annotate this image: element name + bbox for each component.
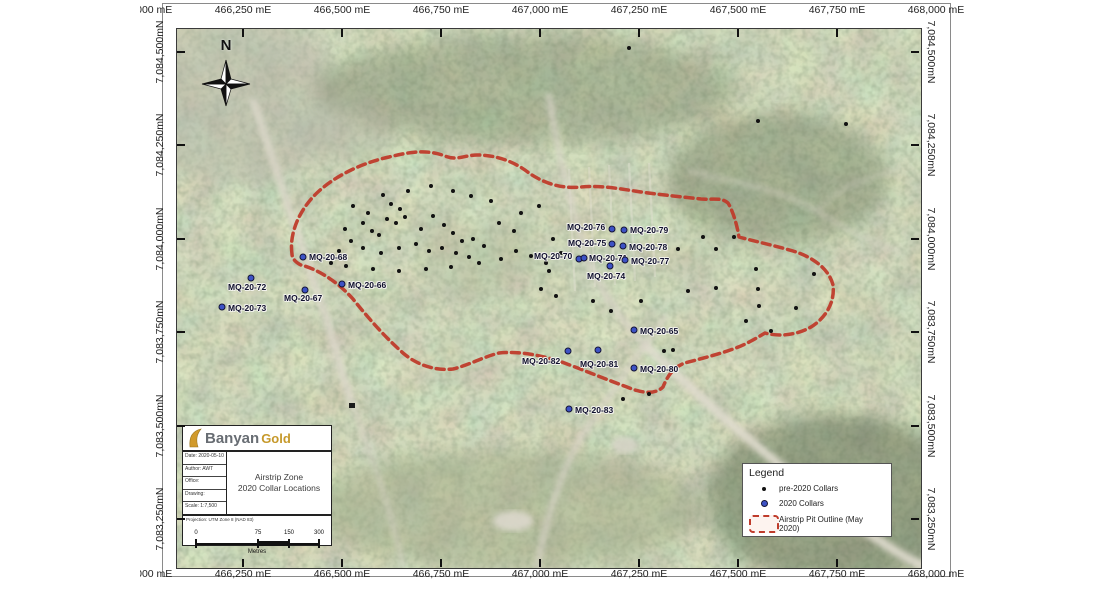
collar-label: MQ-20-73 (228, 303, 266, 313)
pre2020-collar-dot (385, 217, 389, 221)
grid-tick-right (911, 331, 919, 333)
pre2020-collar-dot (744, 319, 748, 323)
grid-tick-bottom (737, 559, 739, 567)
collar-label: MQ-20-80 (640, 364, 678, 374)
pre2020-collar-dot (427, 249, 431, 253)
scale-tick: 0 (194, 530, 197, 536)
pre2020-collar-dot (431, 214, 435, 218)
northing-label-left: 7,083,250mN (154, 487, 166, 550)
pre2020-collar-dot (394, 221, 398, 225)
pre2020-collar-dot (671, 348, 675, 352)
map-title-line2: 2020 Collar Locations (238, 483, 320, 494)
collar-2020-dot (565, 348, 572, 355)
pre2020-collar-dot (754, 267, 758, 271)
collar-2020-dot (609, 226, 616, 233)
collar-2020-dot (631, 365, 638, 372)
pre2020-collar-dot (732, 235, 736, 239)
northing-label-left: 7,083,500mN (154, 394, 166, 457)
collar-label: MQ-20-65 (640, 326, 678, 336)
pre2020-collar-dot (639, 299, 643, 303)
pre2020-collar-dot (406, 189, 410, 193)
pre2020-collar-dot (609, 309, 613, 313)
pre2020-collar-dot (514, 249, 518, 253)
collar-2020-dot (300, 254, 307, 261)
pre2020-collar-dot (756, 287, 760, 291)
grid-tick-bottom (242, 559, 244, 567)
pre2020-collar-dot (366, 211, 370, 215)
grid-tick-left (177, 51, 185, 53)
grid-tick-bottom (638, 559, 640, 567)
legend-item-label: pre-2020 Collars (779, 484, 838, 493)
collar-2020-dot (607, 263, 614, 270)
title-block-meta: Date: 2020-05-10 Author: AWT Office: Dra… (183, 452, 227, 514)
pre2020-collar-dot (686, 289, 690, 293)
scale-tick: 75 (255, 530, 262, 536)
pre2020-collar-dot (349, 239, 353, 243)
easting-label-top: 467,500 mE (710, 4, 767, 16)
meta-row: Author: AWT (183, 465, 226, 478)
collar-label: MQ-20-83 (575, 405, 613, 415)
legend-title: Legend (749, 467, 885, 479)
pre2020-collar-dot (361, 246, 365, 250)
collar-2020-dot (219, 304, 226, 311)
pre2020-collar-dot (769, 329, 773, 333)
pre2020-collar-dot (451, 189, 455, 193)
easting-label-top: 467,000 mE (512, 4, 569, 16)
legend-item-label: Airstrip Pit Outline (May 2020) (779, 515, 885, 533)
pre2020-collar-dot (397, 246, 401, 250)
pre2020-collar-dot (676, 247, 680, 251)
pre2020-collar-dot (794, 306, 798, 310)
pre2020-collar-dot (714, 286, 718, 290)
collar-label: MQ-20-76 (567, 222, 605, 232)
north-arrow: N (197, 37, 255, 115)
pre2020-collar-dot (469, 194, 473, 198)
map-screenshot: N MQ-20-68MQ-20-72MQ-20-66MQ-20-67MQ-20-… (0, 0, 1093, 613)
northing-label-left: 7,083,750mN (154, 300, 166, 363)
pre2020-collar-dot (451, 231, 455, 235)
pre2020-collar-dot (370, 229, 374, 233)
northing-label-right: 7,083,750mN (925, 300, 937, 363)
pre2020-collar-dot (343, 227, 347, 231)
compass-rose-icon (197, 54, 255, 114)
grid-tick-bottom (440, 559, 442, 567)
grid-tick-right (911, 518, 919, 520)
pre2020-collar-dot (512, 229, 516, 233)
pre2020-collar-dot (554, 294, 558, 298)
grid-tick-left (177, 425, 185, 427)
easting-label-bottom: 466,750 mE (413, 568, 470, 580)
grid-tick-bottom (836, 559, 838, 567)
collar-2020-dot (339, 281, 346, 288)
grid-tick-top (440, 29, 442, 37)
pre2020-collar-dot (497, 221, 501, 225)
collar-2020-dot (620, 243, 627, 250)
pre2020-collar-dot (812, 272, 816, 276)
easting-label-bottom: 467,750 mE (809, 568, 866, 580)
collar-2020-dot (621, 227, 628, 234)
easting-label-top: 468,000 mE (908, 4, 965, 16)
pre2020-collar-dot (539, 287, 543, 291)
northing-label-left: 7,084,250mN (154, 113, 166, 176)
collar-label: MQ-20-81 (580, 359, 618, 369)
grid-tick-left (177, 518, 185, 520)
logo-text-banyan: Banyan (205, 430, 259, 447)
collar-label: MQ-20-82 (522, 356, 560, 366)
pre2020-collar-dot (454, 251, 458, 255)
pre2020-collar-dot (756, 119, 760, 123)
easting-label-bottom: 467,000 mE (512, 568, 569, 580)
grid-tick-left (177, 331, 185, 333)
pre2020-collar-dot (361, 221, 365, 225)
banyan-gold-logo: Banyan Gold (183, 426, 331, 452)
meta-row: Office: (183, 477, 226, 490)
grid-tick-top (836, 29, 838, 37)
pre2020-collar-dot (419, 227, 423, 231)
pre2020-collar-dot (398, 207, 402, 211)
pre2020-collar-dot (429, 184, 433, 188)
pre2020-collar-dot (381, 193, 385, 197)
pre2020-collar-dot (844, 122, 848, 126)
pre2020-collar-dot (489, 199, 493, 203)
grid-tick-right (911, 238, 919, 240)
meta-row: Scale: 1:7,500 (183, 502, 226, 514)
pre2020-collar-dot (757, 304, 761, 308)
grid-tick-right (911, 425, 919, 427)
pre2020-collar-dot (424, 267, 428, 271)
easting-label-bottom: 467,250 mE (611, 568, 668, 580)
pre2020-collar-dot (519, 211, 523, 215)
northing-label-left: 7,084,000mN (154, 207, 166, 270)
pre2020-collar-dot (544, 261, 548, 265)
pre2020-collar-dot (442, 223, 446, 227)
northing-label-right: 7,084,000mN (925, 207, 937, 270)
collar-label: MQ-20-66 (348, 280, 386, 290)
map-title: Airstrip Zone 2020 Collar Locations (227, 452, 331, 514)
grid-tick-top (737, 29, 739, 37)
easting-label-bottom: 468,000 mE (908, 568, 965, 580)
collar-label: MQ-20-79 (630, 225, 668, 235)
easting-label-top: 466,500 mE (314, 4, 371, 16)
pre2020-collar-dot (627, 46, 631, 50)
collar-2020-dot (631, 327, 638, 334)
pre2020-collar-dot (449, 265, 453, 269)
legend-item-label: 2020 Collars (779, 499, 824, 508)
north-arrow-label: N (221, 37, 232, 54)
pre2020-collar-dot (621, 397, 625, 401)
grid-tick-top (341, 29, 343, 37)
grid-tick-left (177, 144, 185, 146)
pit-outline-swatch-icon (749, 515, 779, 533)
pre2020-collar-dot (460, 239, 464, 243)
pre2020-collar-dot (714, 247, 718, 251)
collar-label: MQ-20-72 (228, 282, 266, 292)
map-document: N MQ-20-68MQ-20-72MQ-20-66MQ-20-67MQ-20-… (140, 0, 980, 585)
grid-tick-bottom (341, 559, 343, 567)
logo-text-gold: Gold (261, 431, 291, 446)
northing-label-right: 7,084,500mN (925, 20, 937, 83)
meta-row: Drawing: (183, 490, 226, 503)
banyan-gold-sail-icon (187, 428, 205, 448)
map-title-line1: Airstrip Zone (255, 472, 303, 483)
northing-label-right: 7,083,500mN (925, 394, 937, 457)
easting-label-bottom: 466,500 mE (314, 568, 371, 580)
pre2020-collar-dot (403, 215, 407, 219)
pre2020-collar-dot (529, 254, 533, 258)
pre2020-collar-dot (647, 392, 651, 396)
collar-label: MQ-20-77 (631, 256, 669, 266)
collar-label: MQ-20-67 (284, 293, 322, 303)
easting-label-top: 467,250 mE (611, 4, 668, 16)
title-block: Banyan Gold Date: 2020-05-10 Author: AWT… (182, 425, 332, 546)
northing-label-left: 7,084,500mN (154, 20, 166, 83)
easting-label-top: 467,750 mE (809, 4, 866, 16)
easting-label-bottom: 466,250 mE (215, 568, 272, 580)
grid-tick-top (539, 29, 541, 37)
pre2020-collar-icon (762, 487, 766, 491)
pre2020-collar-dot (537, 204, 541, 208)
grid-tick-right (911, 144, 919, 146)
building-marker (349, 403, 355, 408)
pre2020-collar-dot (547, 269, 551, 273)
pre2020-collar-dot (662, 349, 666, 353)
pre2020-collar-dot (477, 261, 481, 265)
scale-tick: 150 (284, 530, 294, 536)
pre2020-collar-dot (371, 267, 375, 271)
grid-tick-top (638, 29, 640, 37)
collar-label: MQ-20-75 (568, 238, 606, 248)
pre2020-collar-dot (397, 269, 401, 273)
scale-bar: 0 75 150 300 Metres (183, 527, 331, 559)
collar-label: MQ-20-74 (587, 271, 625, 281)
collar-2020-dot (581, 255, 588, 262)
grid-tick-right (911, 51, 919, 53)
pre2020-collar-dot (379, 251, 383, 255)
pre2020-collar-dot (440, 246, 444, 250)
pre2020-collar-dot (467, 255, 471, 259)
collar-2020-dot (609, 241, 616, 248)
northing-label-right: 7,084,250mN (925, 113, 937, 176)
pre2020-collar-dot (414, 242, 418, 246)
map-frame: N MQ-20-68MQ-20-72MQ-20-66MQ-20-67MQ-20-… (176, 28, 922, 569)
collar-label: MQ-20-78 (629, 242, 667, 252)
easting-label-top: 466,750 mE (413, 4, 470, 16)
legend: Legend pre-2020 Collars 2020 Collars Air… (742, 463, 892, 537)
legend-item-2020: 2020 Collars (749, 496, 885, 511)
easting-label-bottom: 466,000 mE (140, 568, 172, 580)
meta-row: Date: 2020-05-10 (183, 452, 226, 465)
pre2020-collar-dot (591, 299, 595, 303)
scale-tick: 300 (314, 530, 324, 536)
collar-label: MQ-20-70 (534, 251, 572, 261)
easting-label-top: 466,000 mE (140, 4, 172, 16)
pre2020-collar-dot (482, 244, 486, 248)
collar-2020-dot (622, 257, 629, 264)
pre2020-collar-dot (377, 233, 381, 237)
pre2020-collar-dot (499, 257, 503, 261)
legend-item-pit-outline: Airstrip Pit Outline (May 2020) (749, 514, 885, 534)
pre2020-collar-dot (701, 235, 705, 239)
collar-2020-icon (761, 500, 768, 507)
pre2020-collar-dot (389, 202, 393, 206)
collar-2020-dot (566, 406, 573, 413)
collar-label: MQ-20-68 (309, 252, 347, 262)
scale-unit: Metres (195, 549, 319, 555)
easting-label-top: 466,250 mE (215, 4, 272, 16)
grid-tick-left (177, 238, 185, 240)
collar-2020-dot (248, 275, 255, 282)
pre2020-collar-dot (351, 204, 355, 208)
pre2020-collar-dot (344, 264, 348, 268)
collar-2020-dot (595, 347, 602, 354)
legend-item-pre2020: pre-2020 Collars (749, 481, 885, 496)
grid-tick-top (242, 29, 244, 37)
projection-note: Projection: UTM Zone 8 (NAD 83) (183, 515, 331, 527)
easting-label-bottom: 467,500 mE (710, 568, 767, 580)
grid-tick-bottom (539, 559, 541, 567)
pre2020-collar-dot (551, 237, 555, 241)
pre2020-collar-dot (471, 237, 475, 241)
northing-label-right: 7,083,250mN (925, 487, 937, 550)
